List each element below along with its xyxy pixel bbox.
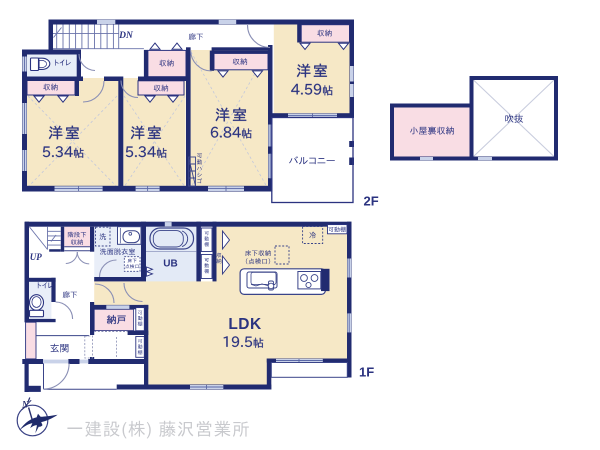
svg-text:2F: 2F [364, 194, 379, 209]
svg-text:N: N [21, 400, 29, 410]
svg-text:DN: DN [118, 31, 134, 41]
svg-text:LDK: LDK [228, 316, 262, 333]
svg-text:1F: 1F [359, 365, 374, 380]
svg-text:UB: UB [163, 259, 177, 270]
svg-text:UP: UP [30, 252, 42, 262]
